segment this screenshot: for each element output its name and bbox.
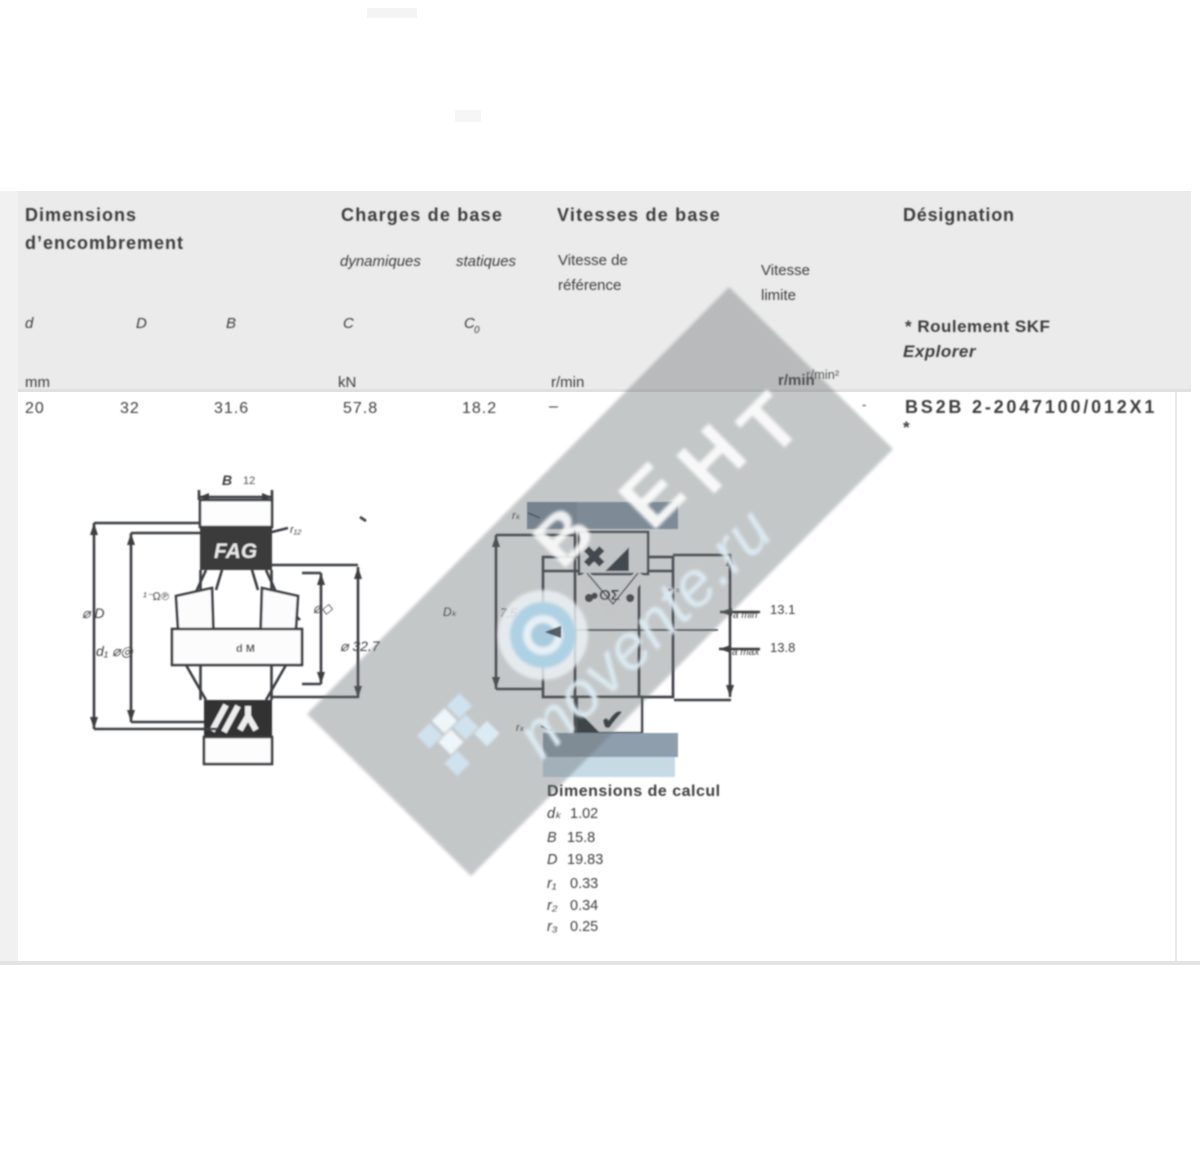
svg-text:0.33: 0.33 xyxy=(570,876,598,892)
svg-text:0.25: 0.25 xyxy=(570,919,598,935)
svg-text:1.02: 1.02 xyxy=(570,806,598,822)
svg-text:31.6: 31.6 xyxy=(214,400,249,417)
svg-text:Dimensions: Dimensions xyxy=(25,205,137,225)
svg-text:a max: a max xyxy=(732,647,760,658)
svg-text:référence: référence xyxy=(558,277,621,294)
svg-text:FAG: FAG xyxy=(214,540,257,563)
svg-text:Désignation: Désignation xyxy=(903,205,1015,225)
svg-text:0: 0 xyxy=(474,325,480,336)
svg-text:12: 12 xyxy=(243,475,255,487)
svg-text:limite: limite xyxy=(761,287,796,304)
svg-text:a min: a min xyxy=(733,610,758,621)
svg-text:57.8: 57.8 xyxy=(343,400,378,417)
svg-text:15.8: 15.8 xyxy=(567,830,595,846)
svg-text:*: * xyxy=(903,418,910,437)
svg-text:statiques: statiques xyxy=(456,253,517,270)
svg-text:32: 32 xyxy=(120,400,140,417)
svg-text:kN: kN xyxy=(338,374,356,391)
svg-text:0.34: 0.34 xyxy=(570,898,598,914)
svg-text:Explorer: Explorer xyxy=(903,342,977,361)
svg-text:-: - xyxy=(862,397,866,412)
svg-text:B: B xyxy=(222,472,232,488)
svg-text:⌀ D: ⌀ D xyxy=(82,605,104,621)
svg-text:BS2B 2-2047100/012X1: BS2B 2-2047100/012X1 xyxy=(905,397,1157,417)
svg-text:d: d xyxy=(25,315,34,332)
svg-text:13.1: 13.1 xyxy=(770,602,795,617)
svg-text:* Roulement SKF: * Roulement SKF xyxy=(905,317,1050,336)
svg-text:D: D xyxy=(136,315,147,332)
svg-text:dₖ: dₖ xyxy=(547,806,562,822)
svg-text:Vitesse de: Vitesse de xyxy=(558,252,628,269)
svg-text:d₁ ⌀◎: d₁ ⌀◎ xyxy=(96,643,135,659)
svg-text:B: B xyxy=(226,315,236,332)
svg-text:C: C xyxy=(343,315,354,332)
svg-text:r₂: r₂ xyxy=(547,898,558,914)
svg-text:18.2: 18.2 xyxy=(462,400,497,417)
svg-text:D: D xyxy=(547,852,557,868)
svg-text:d’encombrement: d’encombrement xyxy=(25,233,184,253)
svg-text:–: – xyxy=(549,398,558,415)
svg-text:⌀◇: ⌀◇ xyxy=(313,600,333,616)
svg-text:20: 20 xyxy=(25,400,45,417)
svg-text:r₁₂: r₁₂ xyxy=(290,524,302,536)
svg-text:r₃: r₃ xyxy=(547,919,558,935)
svg-text:mm: mm xyxy=(25,374,50,391)
svg-text:Vitesses de base: Vitesses de base xyxy=(557,205,721,225)
svg-text:dynamiques: dynamiques xyxy=(340,253,421,270)
svg-text:Vitesse: Vitesse xyxy=(761,262,810,279)
svg-text:13.8: 13.8 xyxy=(770,640,795,655)
svg-text:r₁: r₁ xyxy=(547,876,557,892)
svg-text:B: B xyxy=(547,830,557,846)
svg-text:d M: d M xyxy=(236,643,255,655)
svg-text:r/min: r/min xyxy=(551,374,584,391)
svg-text:Dimensions de calcul: Dimensions de calcul xyxy=(547,783,721,800)
svg-text:19.83: 19.83 xyxy=(567,852,603,868)
svg-text:¹⁻Ω℗: ¹⁻Ω℗ xyxy=(143,591,169,603)
svg-text:Charges de base: Charges de base xyxy=(341,205,503,225)
